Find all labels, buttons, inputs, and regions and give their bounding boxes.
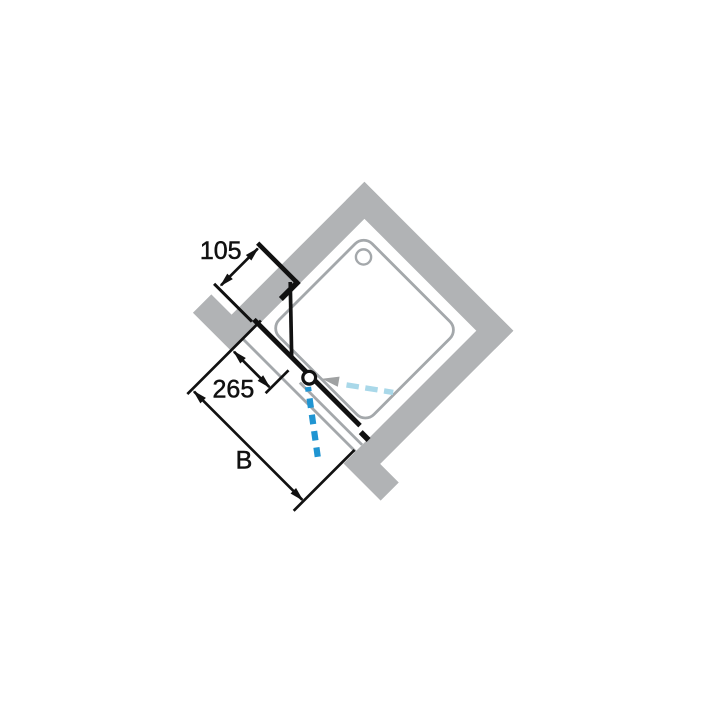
svg-text:105: 105 [200, 237, 242, 265]
svg-text:B: B [236, 447, 253, 475]
svg-text:265: 265 [213, 376, 255, 404]
